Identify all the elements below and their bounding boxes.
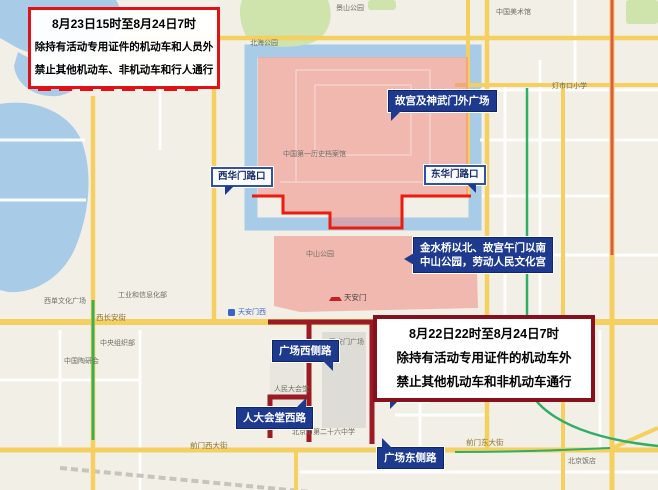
railway-line xyxy=(60,468,310,490)
notice-line: 禁止其他机动车、非机动车和行人通行 xyxy=(31,59,217,82)
notice-dashed-underline xyxy=(38,87,202,91)
callout-pointer xyxy=(382,438,392,448)
callout-square-east-road: 广场东侧路 xyxy=(377,447,444,469)
map-label: 工业和信息化部 xyxy=(118,292,167,300)
map-label: 天安门 xyxy=(344,294,367,302)
callout-text: 西华门路口 xyxy=(218,171,266,182)
metro-station-icon xyxy=(228,309,235,316)
callout-pointer xyxy=(404,253,414,265)
callout-text: 广场西侧路 xyxy=(279,345,332,357)
callout-square-west-road: 广场西侧路 xyxy=(272,340,339,362)
notice-line: 8月22日22时至8月24日7时 xyxy=(377,322,591,346)
notice-line: 除持有活动专用证件的机动车外 xyxy=(377,346,591,370)
map-label: 北京饭店 xyxy=(568,458,596,466)
callout-pointer xyxy=(467,184,476,193)
callout-pointer xyxy=(391,110,402,121)
road-label: 西长安街 xyxy=(96,314,126,322)
map-label: 北海公园 xyxy=(250,40,278,48)
map-label: 中国美术馆 xyxy=(496,9,531,17)
map-label: 北京市第二十六中学 xyxy=(292,429,355,437)
map-label: 人民大会堂 xyxy=(274,386,309,394)
restriction-notice-north: 8月23日15时至8月24日7时 除持有活动专用证件的机动车和人员外 禁止其他机… xyxy=(28,7,220,89)
callout-jinshui-zone: 金水桥以北、故宫午门以南 中山公园，劳动人民文化宫 xyxy=(413,237,553,273)
restriction-notice-south: 8月22日22时至8月24日7时 除持有活动专用证件的机动车外 禁止其他机动车和… xyxy=(373,315,595,402)
metro-station-label: 天安门西 xyxy=(238,309,266,317)
callout-text: 人大会堂西路 xyxy=(243,412,306,424)
map-label: 中国第一历史档案馆 xyxy=(283,151,346,159)
map-label: 灯市口小学 xyxy=(552,83,587,91)
notice-line: 禁止其他机动车和非机动车通行 xyxy=(377,370,591,394)
callout-xihuamen-crossing: 西华门路口 xyxy=(211,167,273,187)
zone-forbidden-city xyxy=(258,57,468,228)
callout-great-hall-west-road: 人大会堂西路 xyxy=(236,407,313,429)
callout-pointer xyxy=(225,186,234,195)
map-label: 中山公园 xyxy=(306,251,334,259)
notice-line: 8月23日15时至8月24日7时 xyxy=(31,13,217,36)
callout-pointer xyxy=(296,398,306,408)
map-viewport[interactable]: 北海公园 景山公园 中国美术馆 灯市口小学 西长安街 天安门西 中山公园 天安门… xyxy=(0,0,658,490)
map-label: 景山公园 xyxy=(336,5,364,13)
callout-text: 金水桥以北、故宫午门以南 xyxy=(420,241,546,255)
map-label: 中国陶研会 xyxy=(64,358,99,366)
map-label: 中央组织部 xyxy=(100,340,135,348)
road-label: 前门西大街 xyxy=(190,442,228,450)
notice-line: 除持有活动专用证件的机动车和人员外 xyxy=(31,36,217,59)
callout-text: 中山公园，劳动人民文化宫 xyxy=(420,255,546,269)
callout-text: 故宫及神武门外广场 xyxy=(395,95,490,107)
callout-pointer xyxy=(323,361,333,371)
callout-text: 东华门路口 xyxy=(431,169,479,180)
callout-text: 广场东侧路 xyxy=(384,452,437,464)
road-label: 前门东大街 xyxy=(466,439,504,447)
map-label: 西单文化广场 xyxy=(44,298,86,306)
callout-donghuamen-crossing: 东华门路口 xyxy=(424,165,486,185)
callout-gugong-square: 故宫及神武门外广场 xyxy=(388,90,497,112)
